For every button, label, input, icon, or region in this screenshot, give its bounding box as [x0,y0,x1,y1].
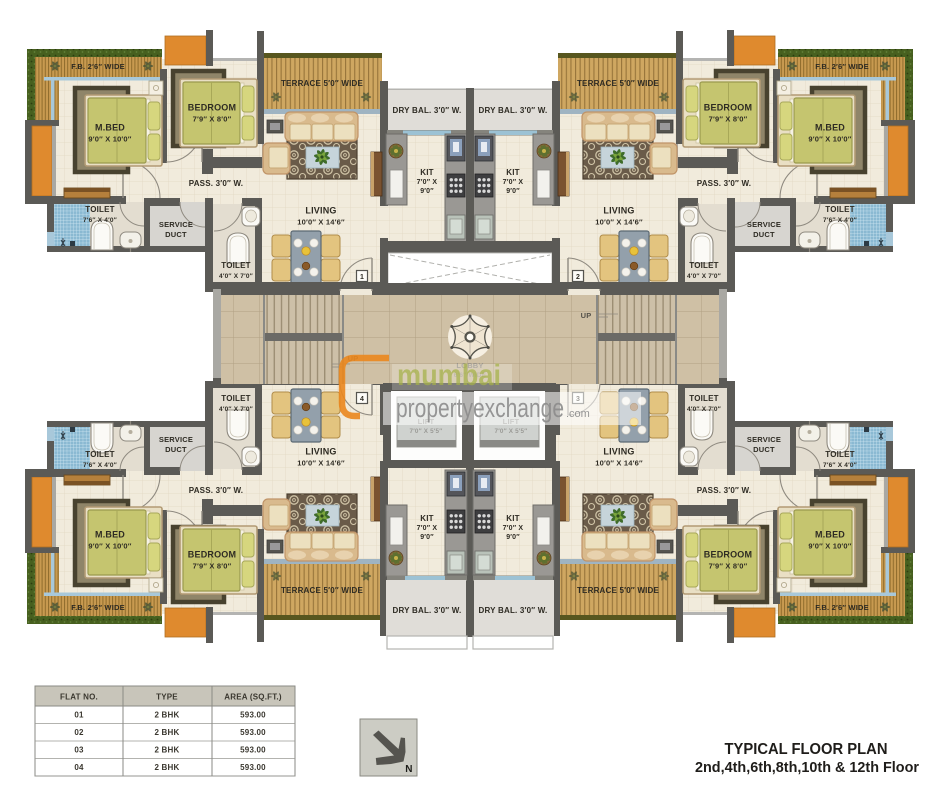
svg-text:4′0″ X 7′0″: 4′0″ X 7′0″ [687,406,721,413]
svg-text:2nd,4th,6th,8th,10th & 12th Fl: 2nd,4th,6th,8th,10th & 12th Floor [695,760,919,776]
svg-text:TOILET: TOILET [825,205,855,214]
svg-text:10′0″ X 14′6″: 10′0″ X 14′6″ [297,218,345,227]
svg-text:7′6″ X 4′0″: 7′6″ X 4′0″ [823,462,857,469]
svg-text:4′0″ X 7′0″: 4′0″ X 7′0″ [219,406,253,413]
svg-text:7′0″ X: 7′0″ X [417,525,438,532]
svg-text:FLAT NO.: FLAT NO. [60,693,98,702]
svg-text:KIT: KIT [420,514,434,523]
svg-text:BEDROOM: BEDROOM [188,103,236,113]
svg-text:2: 2 [576,274,580,281]
svg-text:03: 03 [74,746,84,755]
svg-text:9′0″: 9′0″ [506,188,520,195]
svg-text:KIT: KIT [420,168,434,177]
svg-text:7′9″ X 8′0″: 7′9″ X 8′0″ [193,115,232,124]
svg-text:.com: .com [566,408,590,420]
svg-text:10′0″ X 14′6″: 10′0″ X 14′6″ [595,218,643,227]
svg-text:M.BED: M.BED [95,123,125,133]
svg-text:DUCT: DUCT [753,445,775,454]
svg-text:7′9″ X 8′0″: 7′9″ X 8′0″ [193,562,232,571]
svg-text:M.BED: M.BED [815,123,845,133]
svg-text:593.00: 593.00 [240,746,266,755]
svg-text:TOILET: TOILET [221,394,251,403]
svg-text:F.B. 2′6″ WIDE: F.B. 2′6″ WIDE [815,62,869,71]
svg-text:7′9″ X 8′0″: 7′9″ X 8′0″ [709,115,748,124]
svg-text:M.BED: M.BED [95,530,125,540]
svg-text:2 BHK: 2 BHK [154,763,179,772]
svg-text:7′9″ X 8′0″: 7′9″ X 8′0″ [709,562,748,571]
svg-text:593.00: 593.00 [240,711,266,720]
svg-text:PASS. 3′0″ W.: PASS. 3′0″ W. [697,486,751,495]
svg-text:10′0″ X 14′6″: 10′0″ X 14′6″ [595,459,643,468]
svg-text:DRY BAL. 3′0″ W.: DRY BAL. 3′0″ W. [393,106,462,115]
svg-text:10′0″ X 14′6″: 10′0″ X 14′6″ [297,459,345,468]
svg-text:LIVING: LIVING [305,447,336,457]
svg-text:PASS. 3′0″ W.: PASS. 3′0″ W. [189,179,243,188]
svg-text:2 BHK: 2 BHK [154,728,179,737]
svg-text:7′6″ X 4′0″: 7′6″ X 4′0″ [83,462,117,469]
svg-text:TOILET: TOILET [85,205,115,214]
svg-text:SERVICE: SERVICE [747,220,781,229]
svg-text:TERRACE 5′0″ WIDE: TERRACE 5′0″ WIDE [577,586,660,595]
svg-text:7′0″ X: 7′0″ X [417,179,438,186]
svg-text:9′0″: 9′0″ [420,188,434,195]
svg-text:DRY BAL. 3′0″ W.: DRY BAL. 3′0″ W. [393,606,462,615]
svg-text:01: 01 [74,711,84,720]
svg-text:2 BHK: 2 BHK [154,711,179,720]
svg-text:KIT: KIT [506,514,520,523]
svg-text:M.BED: M.BED [815,530,845,540]
svg-text:F.B. 2′6″ WIDE: F.B. 2′6″ WIDE [71,62,125,71]
svg-text:TOILET: TOILET [85,450,115,459]
svg-text:LIVING: LIVING [305,206,336,216]
svg-text:9′0″ X 10′0″: 9′0″ X 10′0″ [88,542,131,551]
svg-text:7′6″ X 4′0″: 7′6″ X 4′0″ [83,217,117,224]
svg-text:9′0″ X 10′0″: 9′0″ X 10′0″ [808,135,851,144]
svg-text:TERRACE 5′0″ WIDE: TERRACE 5′0″ WIDE [281,79,364,88]
svg-text:F.B. 2′6″ WIDE: F.B. 2′6″ WIDE [71,603,125,612]
svg-text:593.00: 593.00 [240,728,266,737]
svg-text:9′0″: 9′0″ [506,534,520,541]
svg-text:DRY BAL. 3′0″ W.: DRY BAL. 3′0″ W. [479,106,548,115]
svg-text:593.00: 593.00 [240,763,266,772]
svg-text:9′0″ X 10′0″: 9′0″ X 10′0″ [88,135,131,144]
svg-text:9′0″ X 10′0″: 9′0″ X 10′0″ [808,542,851,551]
svg-text:TERRACE 5′0″ WIDE: TERRACE 5′0″ WIDE [281,586,364,595]
svg-text:AREA (SQ.FT.): AREA (SQ.FT.) [224,693,282,702]
svg-text:04: 04 [74,763,84,772]
svg-text:SERVICE: SERVICE [159,220,193,229]
svg-text:TOILET: TOILET [825,450,855,459]
svg-text:LIVING: LIVING [603,447,634,457]
svg-text:4′0″ X 7′0″: 4′0″ X 7′0″ [219,273,253,280]
svg-text:BEDROOM: BEDROOM [188,550,236,560]
svg-text:N: N [405,764,412,775]
svg-text:BEDROOM: BEDROOM [704,550,752,560]
svg-text:9′0″: 9′0″ [420,534,434,541]
svg-text:TYPICAL FLOOR PLAN: TYPICAL FLOOR PLAN [725,741,888,758]
svg-text:DUCT: DUCT [165,230,187,239]
svg-text:TOILET: TOILET [689,394,719,403]
svg-text:7′0″ X: 7′0″ X [503,525,524,532]
svg-text:4: 4 [360,396,364,403]
svg-text:BEDROOM: BEDROOM [704,103,752,113]
svg-text:KIT: KIT [506,168,520,177]
svg-text:F.B. 2′6″ WIDE: F.B. 2′6″ WIDE [815,603,869,612]
svg-text:UP: UP [581,311,592,320]
svg-text:DUCT: DUCT [753,230,775,239]
svg-text:DRY BAL. 3′0″ W.: DRY BAL. 3′0″ W. [479,606,548,615]
svg-text:4′0″ X 7′0″: 4′0″ X 7′0″ [687,273,721,280]
svg-text:7′0″ X 5′5″: 7′0″ X 5′5″ [410,428,443,435]
svg-text:mumbai: mumbai [397,359,501,392]
svg-text:PASS. 3′0″ W.: PASS. 3′0″ W. [697,179,751,188]
svg-text:2 BHK: 2 BHK [154,746,179,755]
svg-text:7′0″ X: 7′0″ X [503,179,524,186]
svg-text:7′0″ X 5′5″: 7′0″ X 5′5″ [495,428,528,435]
svg-text:TOILET: TOILET [221,261,251,270]
svg-text:1: 1 [360,274,364,281]
svg-text:propertyexchange: propertyexchange [396,393,564,423]
svg-text:TYPE: TYPE [156,693,178,702]
svg-text:DUCT: DUCT [165,445,187,454]
svg-text:SERVICE: SERVICE [747,435,781,444]
svg-text:TERRACE 5′0″ WIDE: TERRACE 5′0″ WIDE [577,79,660,88]
svg-text:02: 02 [74,728,84,737]
svg-text:TOILET: TOILET [689,261,719,270]
svg-text:SERVICE: SERVICE [159,435,193,444]
svg-text:7′6″ X 4′0″: 7′6″ X 4′0″ [823,217,857,224]
svg-text:PASS. 3′0″ W.: PASS. 3′0″ W. [189,486,243,495]
svg-text:LIVING: LIVING [603,206,634,216]
